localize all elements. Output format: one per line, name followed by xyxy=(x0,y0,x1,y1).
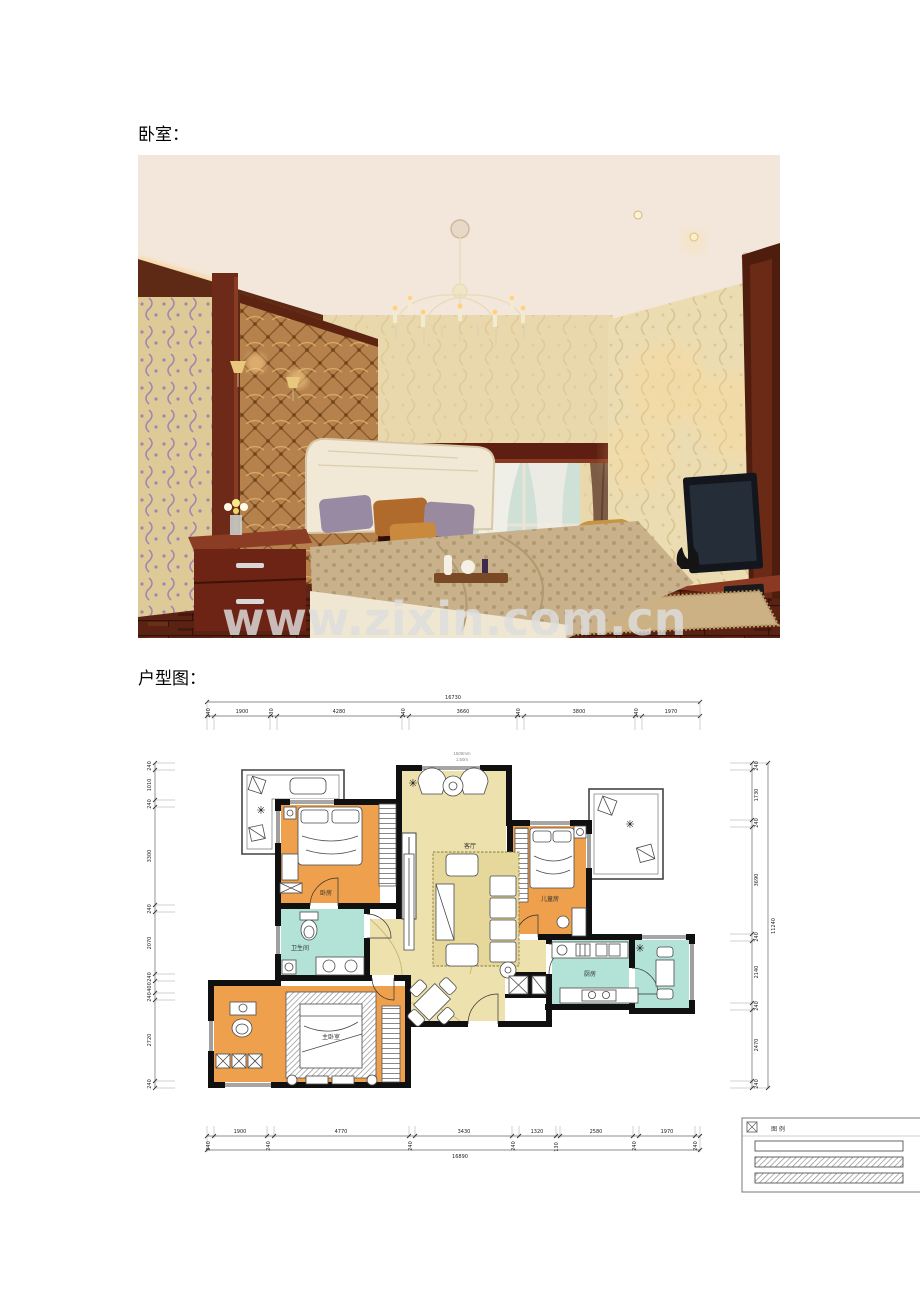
spotlight xyxy=(634,211,642,219)
svg-text:11240: 11240 xyxy=(771,918,777,934)
svg-text:240: 240 xyxy=(516,708,522,718)
svg-text:16890: 16890 xyxy=(452,1154,468,1160)
utility-shaft xyxy=(509,976,546,994)
svg-text:240: 240 xyxy=(206,1141,212,1151)
watermark: www.zixin.com.cn xyxy=(222,592,792,646)
svg-text:1900: 1900 xyxy=(234,1129,247,1135)
svg-text:16730: 16730 xyxy=(445,695,461,701)
document-page: 卧室： xyxy=(0,0,920,1302)
svg-text:240: 240 xyxy=(401,708,407,718)
svg-text:4280: 4280 xyxy=(333,709,346,715)
svg-text:1.50m: 1.50m xyxy=(456,757,469,762)
svg-text:1500mm: 1500mm xyxy=(453,751,470,756)
svg-text:240: 240 xyxy=(147,992,153,1002)
plant-icon: ✳ xyxy=(625,819,634,831)
svg-text:3800: 3800 xyxy=(573,709,586,715)
bedroom-photo-scene xyxy=(138,155,780,638)
svg-text:240: 240 xyxy=(147,904,153,914)
plant-icon: ✳ xyxy=(256,805,265,817)
dimensions-bottom: 1900 4770 3430 1320 2580 1970 240 240 24… xyxy=(205,1126,702,1160)
svg-text:240: 240 xyxy=(408,1141,414,1151)
svg-text:1730: 1730 xyxy=(754,789,760,802)
legend-title: 图 例 xyxy=(771,1125,785,1133)
svg-text:240: 240 xyxy=(147,1079,153,1089)
svg-text:3430: 3430 xyxy=(458,1129,471,1135)
svg-text:240: 240 xyxy=(754,1079,760,1089)
svg-text:2070: 2070 xyxy=(147,937,153,950)
balcony-top-right: ✳ xyxy=(589,789,663,879)
legend: 图 例 xyxy=(742,1118,920,1192)
svg-text:240: 240 xyxy=(266,1141,272,1151)
wardrobe-bedroom1 xyxy=(379,804,396,886)
dimensions-right: 240 1730 240 3690 240 2140 240 2470 240 … xyxy=(730,761,777,1090)
floor-plan: ✳ ✳ xyxy=(130,686,920,1226)
lounge-chair xyxy=(290,778,326,794)
svg-text:3690: 3690 xyxy=(754,874,760,887)
svg-text:240: 240 xyxy=(147,972,153,982)
svg-text:2140: 2140 xyxy=(754,966,760,979)
master-bedroom-label: 主卧室 xyxy=(322,1033,340,1041)
svg-text:230: 230 xyxy=(269,708,275,718)
svg-text:2470: 2470 xyxy=(754,1039,760,1052)
svg-text:240: 240 xyxy=(634,708,640,718)
bedroom-photo xyxy=(138,155,780,638)
kitchen-label: 厨房 xyxy=(584,970,596,978)
svg-text:3660: 3660 xyxy=(457,709,470,715)
svg-text:4770: 4770 xyxy=(335,1129,348,1135)
svg-text:1970: 1970 xyxy=(661,1129,674,1135)
svg-text:1970: 1970 xyxy=(665,709,678,715)
bedroom-section-label: 卧室： xyxy=(138,120,189,145)
bathroom-label: 卫生间 xyxy=(291,944,309,952)
legend-swatch-plain xyxy=(755,1141,903,1151)
entry-bay-annotation: 1500mm 1.50m xyxy=(453,751,470,762)
svg-text:1320: 1320 xyxy=(531,1129,544,1135)
svg-text:400: 400 xyxy=(147,982,153,992)
bedroom1-label: 卧房 xyxy=(320,889,332,897)
svg-text:240: 240 xyxy=(754,932,760,942)
svg-text:1900: 1900 xyxy=(236,709,249,715)
svg-text:240: 240 xyxy=(147,761,153,771)
legend-swatch-hatched xyxy=(755,1157,903,1167)
svg-text:240: 240 xyxy=(511,1141,517,1151)
plant-icon: ✳ xyxy=(635,943,644,955)
svg-text:2720: 2720 xyxy=(147,1034,153,1047)
svg-text:240: 240 xyxy=(754,818,760,828)
svg-text:240: 240 xyxy=(632,1141,638,1151)
svg-text:2580: 2580 xyxy=(590,1129,603,1135)
dimensions-left: 240 1010 240 3300 240 2070 240 400 240 2… xyxy=(147,761,175,1090)
pillow xyxy=(318,494,373,533)
svg-text:240: 240 xyxy=(754,1001,760,1011)
plant-icon: ✳ xyxy=(408,778,417,790)
legend-swatch-hatched xyxy=(755,1173,903,1183)
bedroom2-label: 儿童房 xyxy=(541,895,559,903)
svg-text:240: 240 xyxy=(206,708,212,718)
wardrobe-master xyxy=(382,1006,400,1082)
svg-text:240: 240 xyxy=(693,1141,699,1151)
svg-text:240: 240 xyxy=(754,761,760,771)
svg-text:240: 240 xyxy=(147,799,153,809)
svg-text:130: 130 xyxy=(554,1142,560,1152)
svg-text:3300: 3300 xyxy=(147,850,153,863)
living-label: 客厅 xyxy=(464,842,476,850)
svg-text:1010: 1010 xyxy=(147,779,153,792)
dimensions-top: 16730 240 1900 230 4280 240 3660 240 380… xyxy=(205,695,702,730)
